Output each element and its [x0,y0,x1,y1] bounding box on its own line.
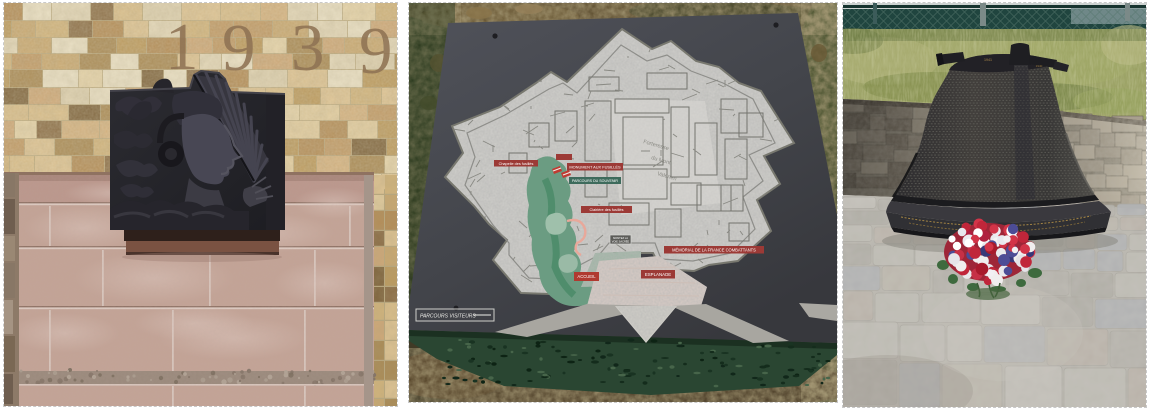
svg-text:ACCUEIL: ACCUEIL [577,274,596,279]
svg-text:1: 1 [165,10,199,84]
svg-text:PARCOURS DU SOUVENIR: PARCOURS DU SOUVENIR [572,179,618,183]
svg-text:MONTEZ LA: MONTEZ LA [613,236,628,240]
svg-text:MONUMENT AUX FUSILLÉS: MONUMENT AUX FUSILLÉS [569,164,621,169]
svg-text:ESPLANADE: ESPLANADE [645,272,671,277]
svg-text:Chapelle des fusillés: Chapelle des fusillés [499,162,534,166]
svg-text:PARCOURS VISITEURS: PARCOURS VISITEURS [420,314,476,320]
svg-text:1940: 1940 [1036,64,1043,68]
svg-text:9: 9 [359,14,393,88]
svg-text:9: 9 [222,11,256,85]
svg-text:3: 3 [291,11,325,85]
svg-text:MÉMORIAL DE LA FRANCE COMBATTA: MÉMORIAL DE LA FRANCE COMBATTANTS [672,247,756,252]
svg-text:Clairière des fusillés: Clairière des fusillés [590,208,624,212]
svg-text:1941: 1941 [984,58,992,62]
